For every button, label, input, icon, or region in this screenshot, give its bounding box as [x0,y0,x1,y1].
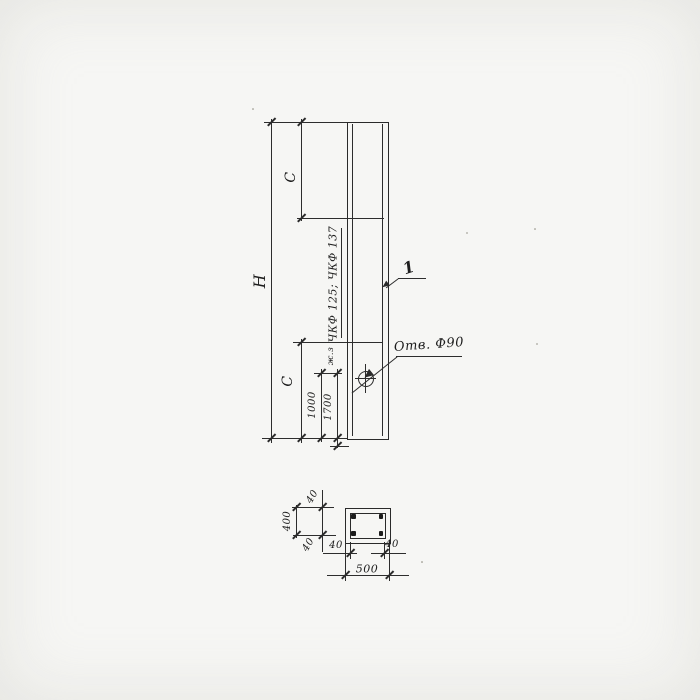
dim-label-1000: 1000 [308,391,318,418]
column-inner-edge [352,124,353,436]
dim-label-c-bottom: C [281,375,295,386]
drawing-canvas: Отв. Ф90 1 H C C 1000 1700 ЧКФ 125; ЧКФ … [0,0,700,700]
dimension-line-h [271,119,272,443]
scan-speck [252,108,254,110]
dim-label-40-right: 40 [385,540,399,550]
scan-speck [536,343,538,345]
rebar-dot [351,531,356,536]
hole-callout-label: Отв. Ф90 [394,336,465,354]
rebar-dot [379,514,384,519]
dimension-line-c-top [301,119,302,221]
scan-speck [534,228,536,230]
extension-line [292,507,334,508]
dim-label-40-bottom: 40 [301,537,317,554]
series-note-label: ЧКФ 125; ЧКФ 137 [328,226,339,342]
dim-label-40-left: 40 [329,541,343,551]
dim-label-c-top: C [284,171,298,182]
series-note-underline [341,228,342,338]
extension-line [330,446,349,447]
dimension-line-cover-left [323,553,357,554]
extension-line [264,122,348,123]
leader-shelf [398,278,426,279]
dim-label-500: 500 [356,564,379,575]
dim-label-40-top: 40 [305,489,321,506]
rebar-dot [379,531,384,536]
scan-speck [466,232,468,234]
dimension-line-c-bottom [301,339,302,443]
position-callout-label: 1 [401,259,417,278]
leader-shelf [396,356,462,357]
dimension-line-cover [322,490,323,552]
rebar-dot [351,514,356,519]
dim-label-1700: 1700 [324,393,334,420]
dimension-line-cover-right [371,553,406,554]
dim-label-h: H [252,274,268,288]
mark-note-label: ж.з [327,347,336,366]
extension-line [293,535,336,536]
column-inner-edge [382,124,383,436]
scan-speck [421,561,423,563]
dim-label-400: 400 [283,511,293,532]
